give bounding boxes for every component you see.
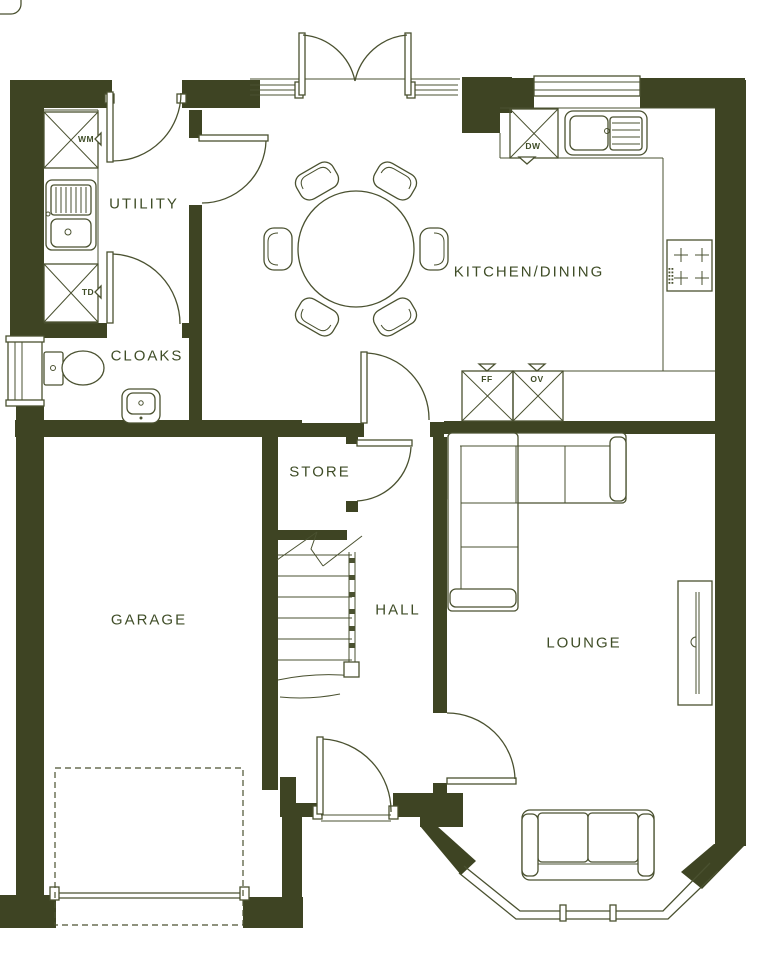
utility-external-door (105, 92, 186, 162)
two-seat-sofa (522, 810, 654, 880)
utility-sink (46, 180, 96, 250)
oven-unit (513, 364, 563, 421)
kitchen-window (534, 76, 640, 96)
room-label-store: STORE (289, 464, 350, 481)
dining-table (298, 191, 414, 307)
appliance-label-oven: OV (530, 374, 543, 384)
appliance-label-dishwasher: DW (525, 141, 540, 151)
lounge-door (447, 713, 516, 784)
cloaks-door (107, 252, 180, 324)
cloaks-basin (122, 389, 160, 423)
appliance-label-fridge-freezer: FF (481, 374, 492, 384)
room-label-lounge: LOUNGE (546, 635, 621, 652)
toilet (44, 351, 104, 385)
room-label-utility: UTILITY (109, 196, 179, 213)
floor-plan: UTILITY CLOAKS KITCHEN/DINING STORE HALL… (0, 0, 760, 960)
french-doors (250, 33, 460, 98)
garage-door-swing (55, 768, 243, 925)
room-label-garage: GARAGE (111, 612, 187, 629)
corner-sofa (448, 433, 626, 611)
kitchen-hall-door (361, 352, 429, 423)
kitchen-sink (565, 111, 647, 155)
room-label-hall: HALL (375, 602, 421, 619)
appliance-label-washing-machine: WM (78, 134, 94, 144)
cloaks-window (6, 336, 44, 406)
dishwasher (510, 109, 558, 164)
garage-door (50, 768, 249, 925)
stairs (277, 532, 362, 698)
fridge-freezer-unit (462, 364, 513, 421)
front-door (313, 737, 398, 821)
utility-kitchen-door (199, 135, 268, 203)
store-door (357, 440, 412, 501)
floor-plan-linework (0, 0, 760, 960)
hob (667, 240, 712, 291)
room-label-kitchen-dining: KITCHEN/DINING (454, 264, 605, 281)
room-label-cloaks: CLOAKS (111, 348, 184, 365)
appliance-label-tumble-dryer: TD (82, 287, 94, 297)
tv-unit (678, 581, 712, 705)
